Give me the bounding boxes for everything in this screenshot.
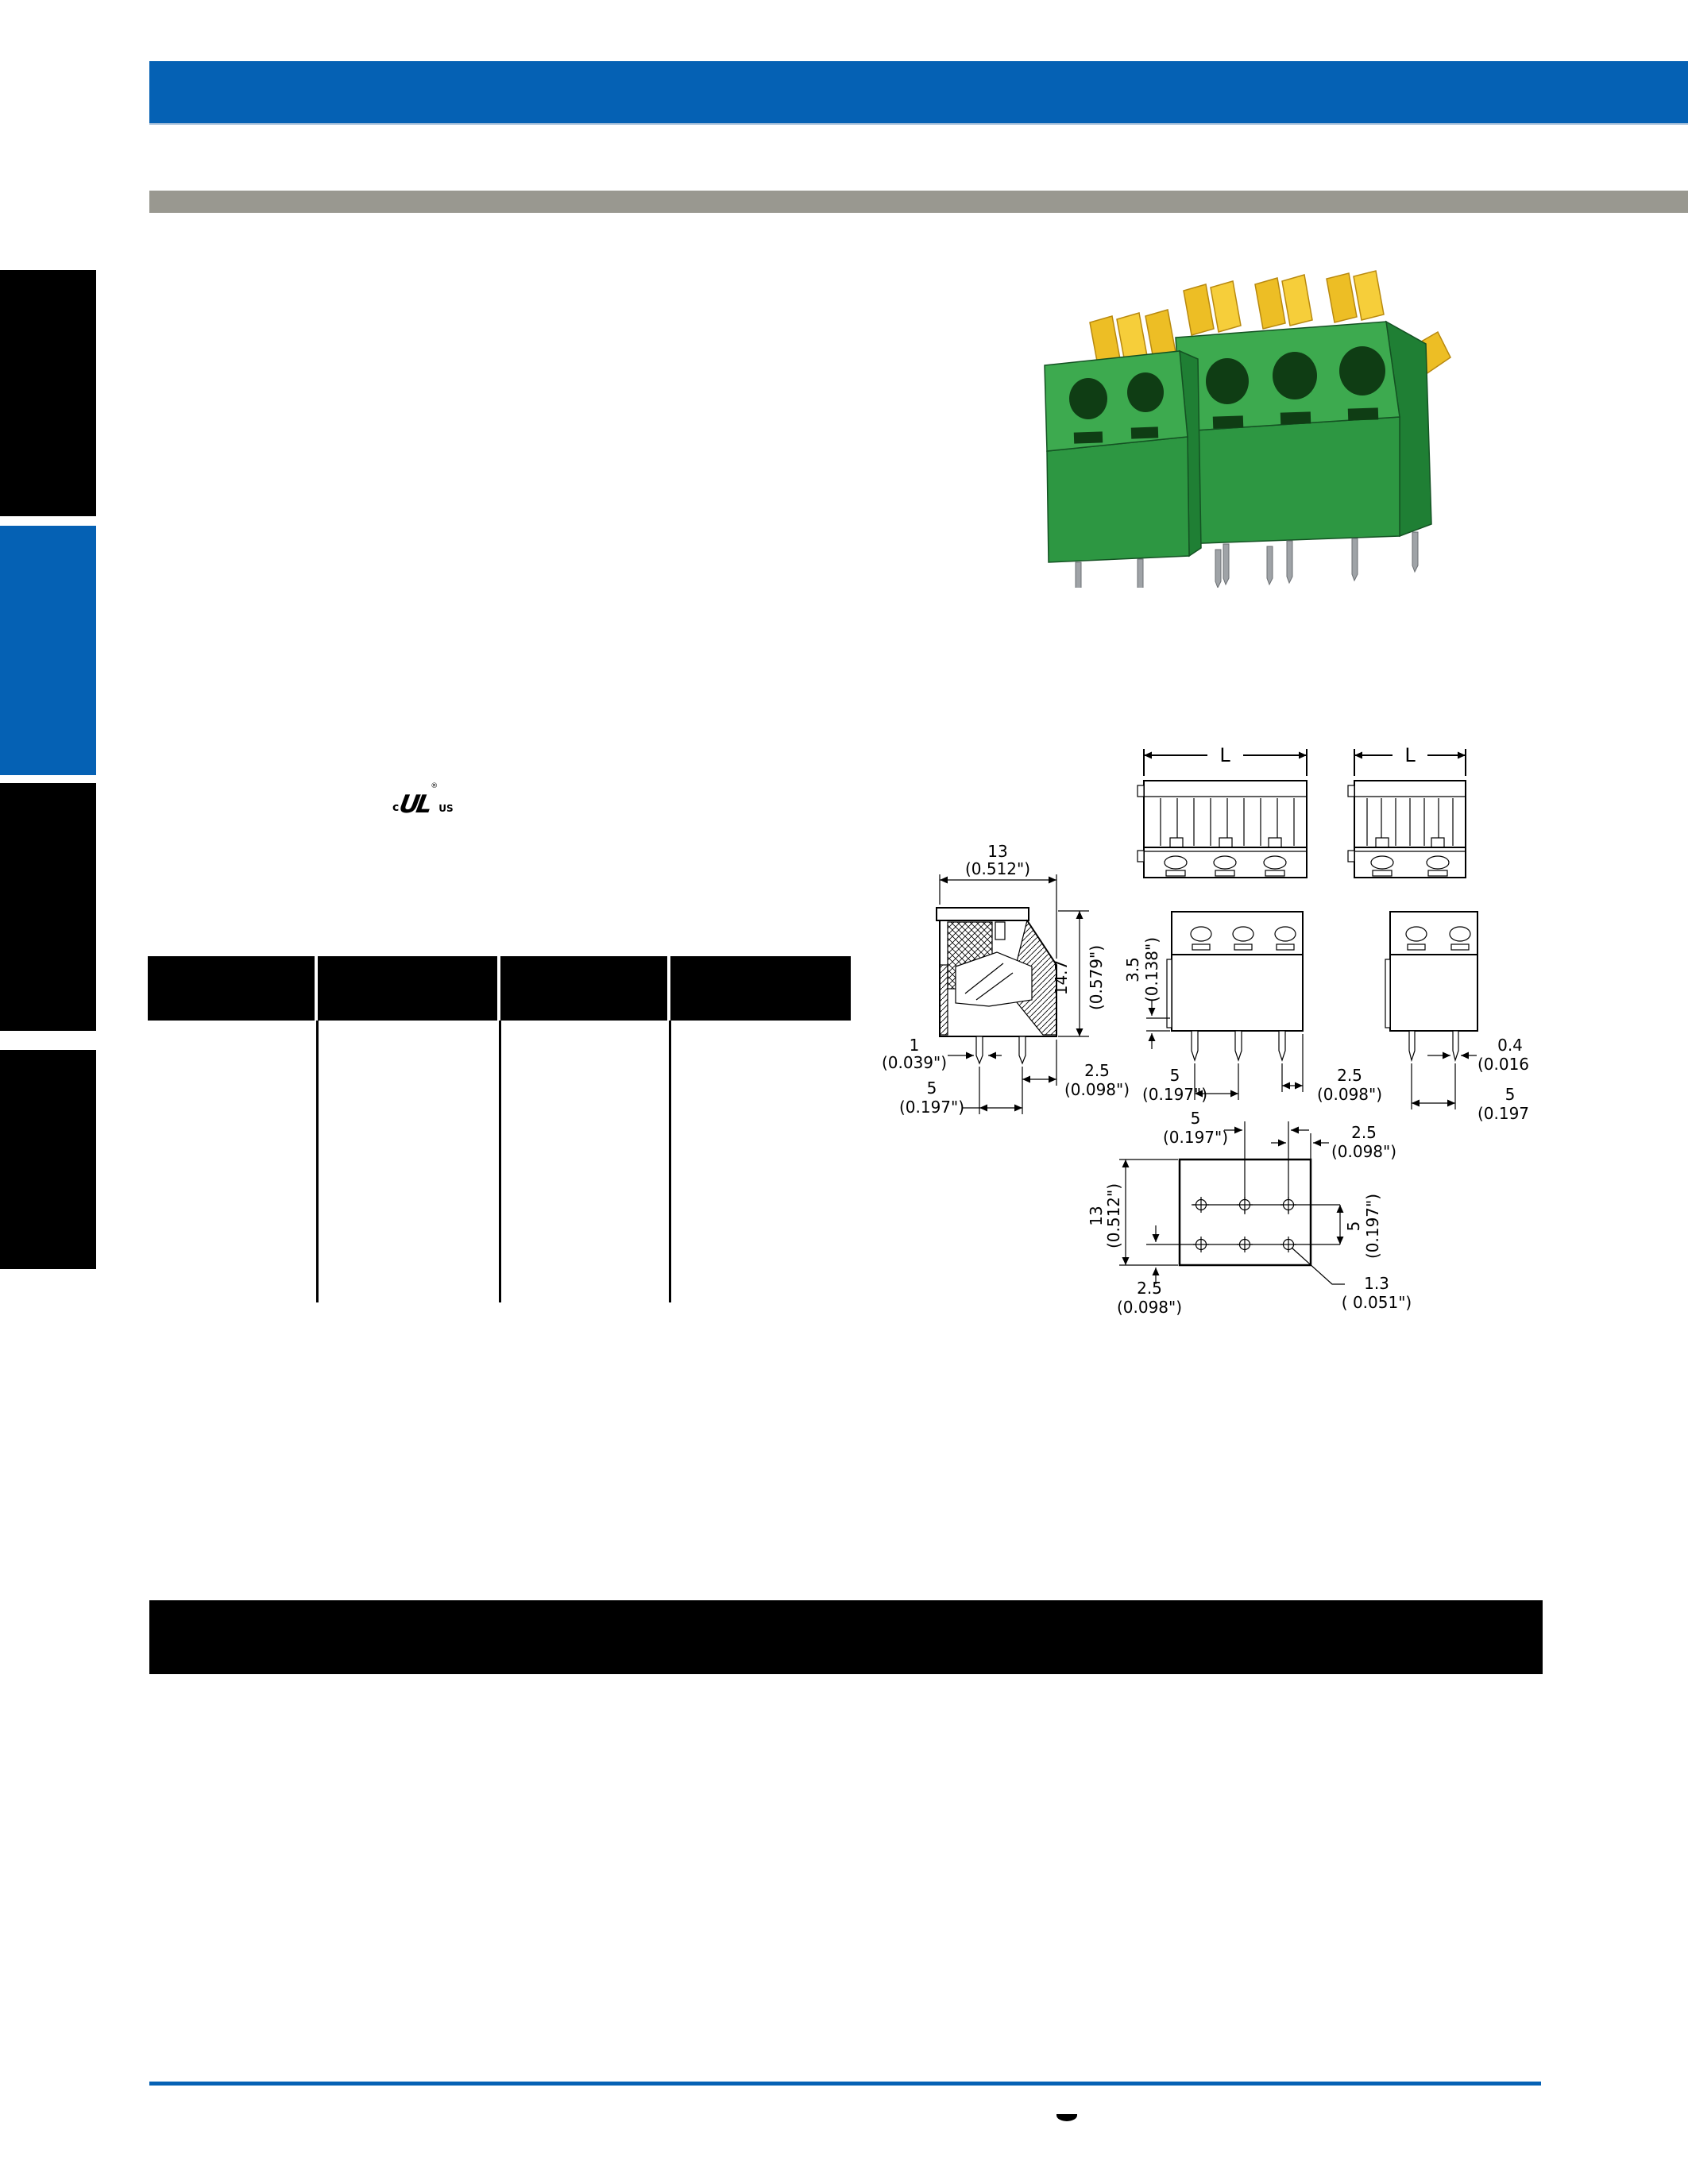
dim-side-width-mm: 13 xyxy=(987,842,1007,861)
side-section-view: 13 (0.512") 14.7 (0.579") 1 (0.039") 5 (… xyxy=(882,842,1130,1117)
dim-pcb-hole-dia-in: ( 0.051") xyxy=(1342,1293,1412,1312)
subheader-bar xyxy=(149,191,1688,213)
table-header-row xyxy=(148,956,854,1021)
dim-pcb-row-pitch-mm: 5 xyxy=(1344,1221,1363,1232)
dim-side-height-mm: 14.7 xyxy=(1052,960,1071,996)
front-view-2pole: 0.4 (0.016") 5 (0.197") xyxy=(1385,912,1529,1123)
dim-side-pin-width-in: (0.039") xyxy=(882,1053,947,1072)
dim-front3-edge-in: (0.098") xyxy=(1317,1085,1382,1104)
dim-length-label: L xyxy=(1404,744,1416,766)
table-header-cell xyxy=(500,956,667,1021)
dim-pcb-edge-right-mm: 2.5 xyxy=(1351,1123,1377,1142)
dim-side-pin-width-mm: 1 xyxy=(910,1036,920,1055)
terminal-block-photo xyxy=(1025,262,1470,588)
registered-trademark-icon: ® xyxy=(431,783,438,790)
dim-pcb-height-in: (0.512") xyxy=(1104,1183,1123,1248)
ul-mark-us: US xyxy=(438,804,453,815)
dim-pcb-edge-bottom-in: (0.098") xyxy=(1117,1298,1182,1317)
sidebar-tab-blue xyxy=(0,526,96,775)
top-view-2pole: L xyxy=(1348,744,1466,878)
photo-block-3pole xyxy=(1176,322,1431,585)
dim-pcb-height-mm: 13 xyxy=(1087,1206,1106,1225)
table-header-cell xyxy=(318,956,497,1021)
footer-logo-glyph xyxy=(1056,2114,1077,2121)
dim-side-width-in: (0.512") xyxy=(965,859,1030,878)
sidebar-tab-black-1 xyxy=(0,270,96,516)
sidebar-tab-black-3 xyxy=(0,1050,96,1269)
pcb-hole-layout: 5 (0.197") 2.5 (0.098") 13 (0.512") 2.5 … xyxy=(1087,1109,1412,1317)
ul-logo-icon: UL xyxy=(398,794,431,815)
table-column-divider xyxy=(669,1021,671,1302)
dim-pcb-row-pitch-in: (0.197") xyxy=(1363,1194,1382,1259)
dim-front3-pitch-in: (0.197") xyxy=(1142,1085,1207,1104)
ordering-table xyxy=(148,956,854,1302)
dim-length-label: L xyxy=(1219,744,1230,766)
table-column-divider xyxy=(316,1021,319,1302)
table-header-cell xyxy=(670,956,851,1021)
dim-pcb-hole-dia-mm: 1.3 xyxy=(1364,1274,1389,1293)
dim-front2-pitch-in: (0.197") xyxy=(1477,1104,1529,1123)
dim-side-edge-mm: 2.5 xyxy=(1084,1061,1110,1080)
pcb-holes xyxy=(1193,1197,1296,1252)
dim-pcb-edge-right-in: (0.098") xyxy=(1331,1142,1396,1161)
title-bar xyxy=(149,61,1688,125)
dim-side-pitch-mm: 5 xyxy=(927,1078,937,1098)
table-header-cell xyxy=(148,956,315,1021)
technical-drawings: L xyxy=(870,727,1529,1370)
dim-front2-pin-width-mm: 0.4 xyxy=(1497,1036,1523,1055)
dim-pcb-edge-bottom-mm: 2.5 xyxy=(1137,1279,1162,1298)
table-column-divider xyxy=(499,1021,501,1302)
dim-front3-height-mm: 3.5 xyxy=(1123,957,1142,982)
sidebar-tab-black-2 xyxy=(0,783,96,1031)
dim-side-pitch-in: (0.197") xyxy=(899,1098,964,1117)
ul-recognized-mark: c UL ® US xyxy=(392,783,454,815)
dim-front3-pitch-mm: 5 xyxy=(1170,1066,1180,1085)
dim-front3-edge-mm: 2.5 xyxy=(1337,1066,1362,1085)
datasheet-page: c UL ® US xyxy=(0,0,1688,2184)
dim-front3-height-in: (0.138") xyxy=(1142,937,1161,1002)
dim-front2-pitch-mm: 5 xyxy=(1505,1085,1516,1104)
dim-side-height-in: (0.579") xyxy=(1087,945,1106,1010)
top-view-3pole: L xyxy=(1138,744,1307,878)
dim-side-edge-in: (0.098") xyxy=(1064,1080,1130,1099)
dim-pcb-col-pitch-mm: 5 xyxy=(1191,1109,1201,1128)
front-view-3pole: 3.5 (0.138") 5 (0.197") 2.5 (0.098") xyxy=(1123,912,1382,1104)
dim-pcb-col-pitch-in: (0.197") xyxy=(1163,1128,1228,1147)
dim-front2-pin-width-in: (0.016") xyxy=(1477,1055,1529,1074)
footer-rule xyxy=(149,2082,1541,2086)
section-banner xyxy=(149,1600,1543,1674)
